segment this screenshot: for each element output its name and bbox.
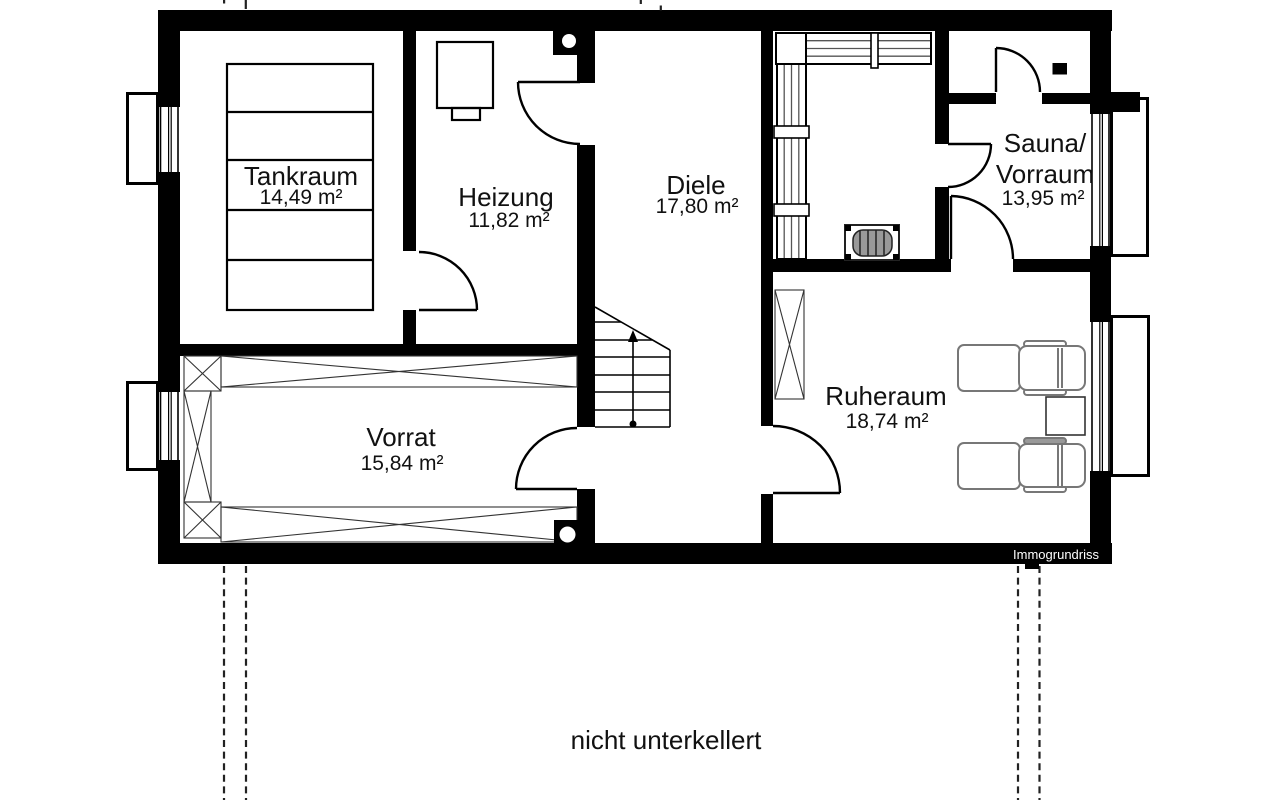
svg-text:11,82 m²: 11,82 m² bbox=[468, 209, 549, 232]
svg-text:Vorrat: Vorrat bbox=[366, 422, 436, 452]
svg-text:Heizung: Heizung bbox=[458, 182, 553, 212]
svg-text:nicht unterkellert: nicht unterkellert bbox=[571, 725, 763, 755]
svg-text:18,74 m²: 18,74 m² bbox=[846, 410, 929, 433]
svg-text:Vorraum: Vorraum bbox=[996, 159, 1094, 189]
svg-text:13,95 m²: 13,95 m² bbox=[1002, 187, 1085, 210]
svg-text:Ruheraum: Ruheraum bbox=[825, 381, 946, 411]
svg-text:17,80 m²: 17,80 m² bbox=[656, 195, 739, 218]
svg-text:15,84 m²: 15,84 m² bbox=[361, 452, 444, 475]
svg-text:14,49 m²: 14,49 m² bbox=[260, 186, 343, 209]
svg-text:Sauna/: Sauna/ bbox=[1004, 128, 1087, 158]
svg-text:Immogrundriss: Immogrundriss bbox=[1013, 547, 1099, 562]
